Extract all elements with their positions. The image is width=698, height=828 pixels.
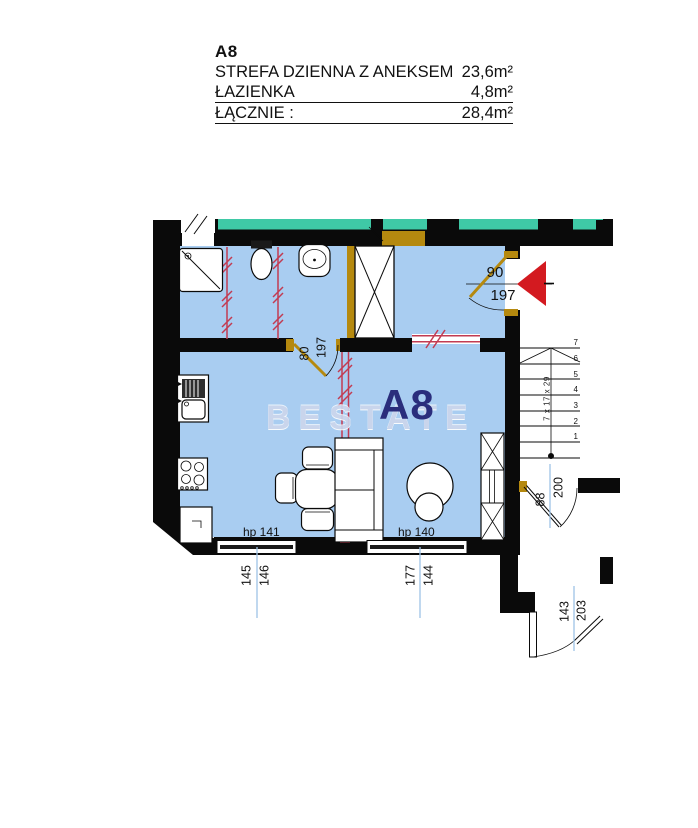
teal-band [383, 219, 427, 230]
teal-band [218, 219, 371, 230]
door-jamb-gold [286, 339, 294, 351]
kitchen-sink [176, 375, 209, 422]
wall-notch [518, 592, 535, 613]
stair-walkline-dot [548, 453, 554, 459]
stair-step-2: 2 [568, 418, 578, 426]
stair-step-3: 3 [568, 402, 578, 410]
hall-wall [480, 338, 505, 352]
watermark: BESTATE [266, 399, 476, 438]
right-bar [600, 557, 613, 584]
bathroom-door-height: 197 [316, 328, 329, 368]
lower-right-wall [500, 555, 518, 613]
staircase-door-height: 200 [553, 468, 566, 508]
door-jamb-gold [504, 309, 518, 316]
landing-wall [578, 478, 620, 493]
bathroom-door-width: 80 [299, 334, 312, 374]
lintel-gold [382, 231, 425, 246]
top-left-corner [153, 220, 182, 246]
window-1-dim-a: 145 [241, 556, 254, 596]
window-2-label: hp 140 [398, 525, 435, 539]
kitchen-fixtures [176, 375, 212, 543]
stair-step-6: 6 [568, 355, 578, 363]
entrance-door-width: 90 [478, 264, 512, 281]
shower [180, 249, 223, 292]
staircase-door-width: 88 [535, 480, 548, 520]
shaft-gold-strip [347, 246, 355, 338]
top-right-block [596, 220, 613, 246]
window-2-sash [370, 545, 464, 549]
window-1-dim-b: 146 [259, 556, 272, 596]
stair-step-1: 1 [568, 433, 578, 441]
washbasin [299, 245, 330, 277]
balcony-door-height: 203 [576, 591, 589, 631]
stair-step-4: 4 [568, 386, 578, 394]
left-wall [153, 246, 180, 514]
toilet [251, 241, 272, 280]
room-label: A8 [379, 381, 435, 429]
stair-dimensions-note: 7 x 17 x 29 [543, 373, 552, 425]
window-1-label: hp 141 [243, 525, 280, 539]
stove [178, 458, 208, 490]
window-2-dim-a: 177 [405, 556, 418, 596]
balcony-door-width: 143 [559, 592, 572, 632]
teal-band [459, 219, 538, 230]
door-jamb-gold [504, 251, 518, 258]
wardrobe [481, 433, 504, 540]
window-2-dim-b: 144 [423, 556, 436, 596]
stair-step-5: 5 [568, 371, 578, 379]
fridge [180, 507, 212, 543]
right-wall [505, 310, 520, 555]
entrance-door-height: 197 [483, 287, 523, 304]
stair-step-7: 7 [568, 339, 578, 347]
bathroom-wall [180, 338, 293, 352]
floorplan-page: A8 STREFA DZIENNA Z ANEKSEM 23,6m² ŁAZIE… [0, 0, 698, 828]
sofa [335, 438, 383, 542]
door-jamb-gold [519, 481, 527, 492]
hall-wall [340, 338, 412, 352]
